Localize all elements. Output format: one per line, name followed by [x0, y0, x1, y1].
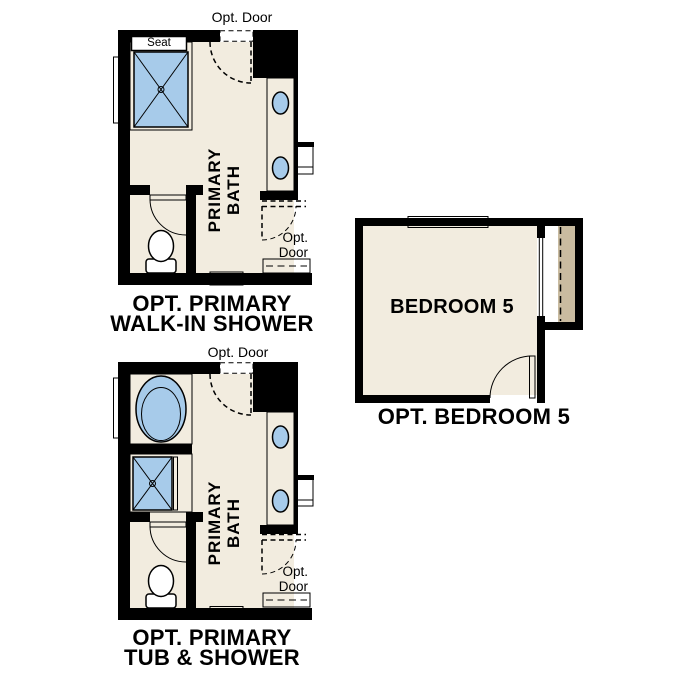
opt-label-line: Opt.: [268, 565, 308, 580]
bath1-room-label-line2: BATH: [224, 125, 243, 255]
bedroom-caption: OPT. BEDROOM 5: [349, 407, 599, 427]
sink: [273, 157, 289, 179]
door-label-line: Door: [268, 246, 308, 261]
bath2-toilet: [146, 566, 176, 609]
sink: [273, 490, 289, 512]
bath1-opt-door-top-label: Opt. Door: [182, 10, 302, 25]
bath2-room-label-line1: PRIMARY: [205, 458, 224, 588]
bath1-room-label: PRIMARY BATH: [205, 125, 247, 255]
bath1-opt-door-side-label: Opt. Door: [268, 231, 308, 260]
bath1-shower: [130, 37, 192, 131]
bath1-room-label-line1: PRIMARY: [205, 125, 224, 255]
bath2-room-label: PRIMARY BATH: [205, 458, 247, 588]
opt-label-line: Opt.: [268, 231, 308, 246]
bath2-opt-door-side-label: Opt. Door: [268, 565, 308, 594]
bath1-caption-line2: WALK-IN SHOWER: [87, 314, 337, 334]
floorplan-svg: [0, 0, 687, 687]
bath1-caption: OPT. PRIMARY WALK-IN SHOWER: [87, 294, 337, 334]
bath2-caption-line2: TUB & SHOWER: [87, 648, 337, 668]
sink: [273, 92, 289, 114]
sink: [273, 426, 289, 448]
bath2-caption: OPT. PRIMARY TUB & SHOWER: [87, 628, 337, 668]
bath1-toilet: [146, 231, 176, 274]
shower-seat-label: Seat: [131, 37, 187, 49]
bath2-opt-door-top-label: Opt. Door: [178, 345, 298, 360]
bedroom-room-label: BEDROOM 5: [352, 297, 552, 318]
floorplan-canvas: Opt. Door Seat PRIMARY BATH Opt. Door OP…: [0, 0, 687, 687]
door-label-line: Door: [268, 580, 308, 595]
bath2-room-label-line2: BATH: [224, 458, 243, 588]
